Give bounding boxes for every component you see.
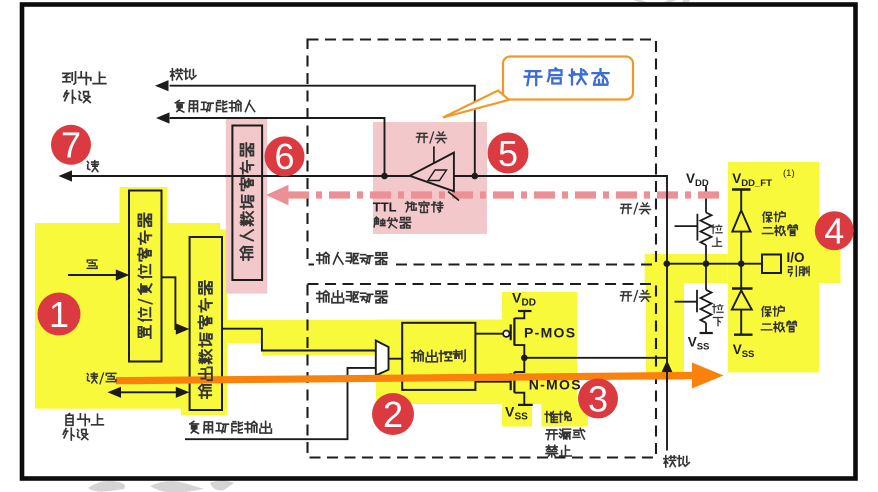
svg-text:(1): (1) (783, 168, 795, 179)
svg-text:SS: SS (697, 342, 710, 353)
svg-text:7: 7 (61, 125, 81, 166)
svg-text:1: 1 (49, 294, 69, 335)
svg-text:SS: SS (515, 412, 529, 423)
svg-text:N-MOS: N-MOS (529, 377, 582, 393)
svg-text:DD: DD (695, 178, 709, 189)
svg-text:SS: SS (742, 349, 755, 360)
svg-text:TTL: TTL (373, 200, 397, 215)
svg-text:I/O: I/O (787, 250, 805, 265)
svg-text:2: 2 (383, 394, 403, 435)
svg-text:V: V (688, 335, 697, 350)
svg-text:V: V (732, 171, 741, 186)
svg-text:V: V (505, 404, 515, 420)
svg-text:DD_FT: DD_FT (741, 178, 772, 189)
svg-text:6: 6 (274, 136, 294, 177)
svg-text:3: 3 (588, 378, 608, 419)
svg-text:5: 5 (498, 133, 518, 174)
svg-text:V: V (733, 342, 742, 357)
svg-text:V: V (686, 171, 695, 186)
svg-text:4: 4 (824, 211, 844, 252)
svg-text:DD: DD (522, 298, 536, 309)
svg-text:V: V (512, 290, 522, 306)
svg-text:P-MOS: P-MOS (524, 325, 576, 341)
